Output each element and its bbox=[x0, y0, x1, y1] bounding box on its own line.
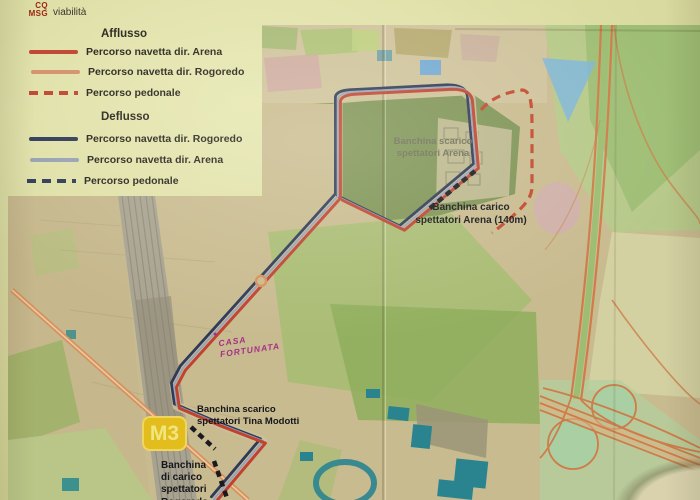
legend-item-label: Percorso navetta dir. Arena bbox=[87, 154, 223, 166]
legend-heading-afflusso: Afflusso bbox=[101, 28, 147, 40]
line-sample-red-dashed bbox=[29, 91, 78, 95]
legend-item-deflusso-rogoredo: Percorso navetta dir. Rogoredo bbox=[29, 132, 242, 145]
logo-line2: MSG bbox=[24, 10, 48, 18]
label-banchina-scarico-arena: Banchina scarico spettatori Arena bbox=[383, 136, 483, 161]
line-sample-salmon-solid bbox=[31, 70, 80, 74]
legend-item-afflusso-rogoredo: Percorso navetta dir. Rogoredo bbox=[31, 65, 244, 78]
legend-heading-deflusso: Deflusso bbox=[101, 111, 150, 123]
legend-item-afflusso-pedonale: Percorso pedonale bbox=[29, 86, 181, 99]
line-sample-red-solid bbox=[29, 50, 78, 54]
legend-item-deflusso-arena: Percorso navetta dir. Arena bbox=[30, 153, 223, 166]
legend-item-afflusso-arena: Percorso navetta dir. Arena bbox=[29, 45, 222, 58]
line-sample-navy-dashed bbox=[27, 179, 76, 183]
label-banchina-carico-arena: Banchina carico spettatori Arena (140m) bbox=[401, 201, 541, 227]
leaflet-photo: CQ MSG viabilità Afflusso Percorso navet… bbox=[0, 0, 700, 500]
metro-m3-badge: M3 bbox=[142, 416, 187, 451]
label-banchina-rogoredo: Banchina di carico spettatori Rogoredo bbox=[161, 460, 241, 500]
legend-item-label: Percorso pedonale bbox=[84, 175, 179, 187]
legend-item-deflusso-pedonale: Percorso pedonale bbox=[27, 174, 179, 187]
roundabout bbox=[256, 276, 266, 286]
legend-item-label: Percorso navetta dir. Rogoredo bbox=[88, 66, 244, 78]
line-sample-navy-solid bbox=[29, 137, 78, 141]
legend-item-label: Percorso navetta dir. Arena bbox=[86, 46, 222, 58]
page-title: viabilità bbox=[53, 7, 86, 18]
casa-marker-dot: ● bbox=[213, 331, 217, 338]
legend-item-label: Percorso pedonale bbox=[86, 87, 181, 99]
line-sample-slate-solid bbox=[30, 158, 79, 162]
label-banchina-tina-modotti: Banchina scarico spettatori Tina Modotti bbox=[197, 404, 307, 429]
cq-msg-logo: CQ MSG bbox=[24, 2, 48, 18]
legend-item-label: Percorso navetta dir. Rogoredo bbox=[86, 133, 242, 145]
